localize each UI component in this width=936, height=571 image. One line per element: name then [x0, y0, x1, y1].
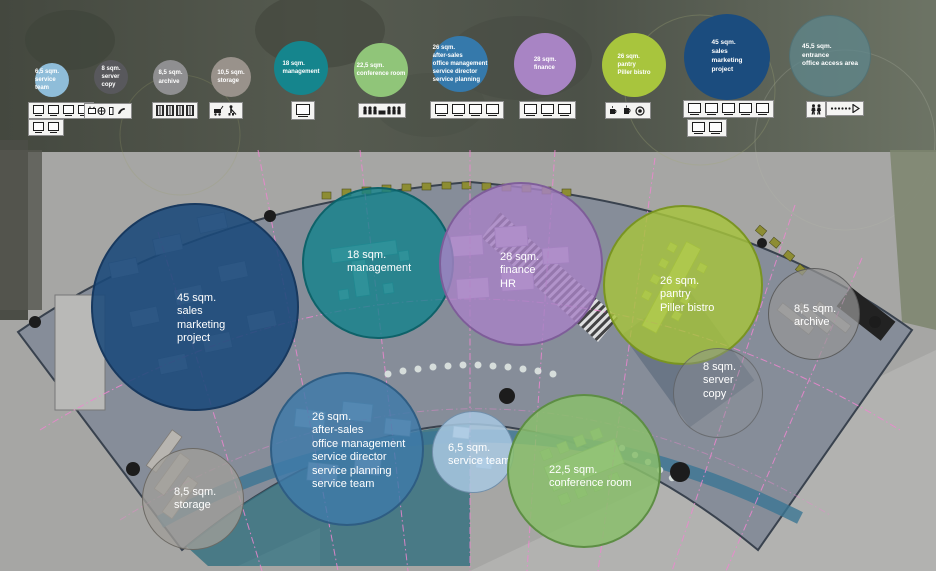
legend-icons-after-sales	[430, 101, 504, 119]
legend-bubble-sales: 45 sqm. sales marketing project	[684, 14, 770, 100]
legend-bubble-entrance: 45,5 sqm. entrance office access area	[789, 15, 871, 97]
legend-bubble-label: 18 sqm. management	[282, 60, 319, 76]
zone-bubble-label: 28 sqm. finance HR	[500, 251, 539, 291]
monitor-icon	[469, 104, 482, 114]
monitor-icon	[452, 104, 465, 114]
zone-bubble-label: 8 sqm. server copy	[703, 361, 736, 401]
zone-bubble-conference-room: 22,5 sqm. conference room	[507, 394, 661, 548]
legend-bubble-management: 18 sqm. management	[274, 41, 328, 95]
zone-bubble-pantry: 26 sqm. pantry Piller bistro	[603, 205, 763, 365]
printer-copier-phone-icons	[88, 106, 128, 116]
monitor-icon	[63, 105, 74, 114]
zone-bubble-finance: 28 sqm. finance HR	[439, 182, 603, 346]
legend-bubble-finance: 28 sqm. finance	[514, 33, 576, 95]
legend-icons-pantry	[605, 102, 651, 119]
legend-bubble-server-copy: 8 sqm. server copy	[94, 60, 128, 94]
legend-bubble-label: 8 sqm. server copy	[101, 65, 120, 89]
monitor-icon	[541, 104, 554, 114]
legend-icons-entrance-arrow	[826, 101, 864, 116]
legend-bubble-label: 6,5 sqm. service team	[35, 68, 69, 92]
legend-icons-archive	[152, 102, 198, 119]
monitor-icon	[705, 103, 718, 113]
monitor-icon	[524, 104, 537, 114]
legend-bubble-label: 22,5 sqm. conference room	[357, 62, 406, 78]
legend-icons-server-copy	[84, 103, 132, 119]
zone-bubble-label: 45 sqm. sales marketing project	[177, 292, 225, 346]
monitor-icon	[739, 103, 752, 113]
shelf-icon	[176, 105, 184, 116]
legend-bubble-label: 28 sqm. finance	[534, 56, 556, 72]
people-icon	[810, 104, 822, 115]
shelf-icon	[166, 105, 174, 116]
monitor-icon	[48, 105, 59, 114]
zone-bubble-label: 8,5 sqm. storage	[174, 486, 216, 513]
legend-bubble-pantry: 26 sqm. pantry Piller bistro	[602, 33, 666, 97]
zone-bubble-label: 22,5 sqm. conference room	[549, 464, 632, 491]
legend-bubble-label: 8,5 sqm. archive	[158, 69, 182, 85]
legend-icons-service-team-row2	[28, 119, 64, 136]
legend-icons-management	[291, 101, 315, 120]
zone-bubble-server-copy: 8 sqm. server copy	[673, 348, 763, 438]
meeting-silhouette-icon	[362, 106, 402, 115]
legend-icons-entrance-people	[806, 101, 826, 118]
zone-bubble-label: 8,5 sqm. archive	[794, 303, 836, 330]
cleaning-icons	[213, 105, 239, 116]
legend-bubble-conference-room: 22,5 sqm. conference room	[354, 43, 408, 97]
zone-bubble-sales: 45 sqm. sales marketing project	[91, 203, 299, 411]
monitor-icon	[558, 104, 571, 114]
legend-bubble-label: 10,5 sqm. storage	[217, 69, 244, 85]
legend-bubble-after-sales: 26 sqm. after-sales office management se…	[432, 36, 488, 92]
legend-icons-finance	[519, 101, 576, 119]
zone-bubble-storage: 8,5 sqm. storage	[142, 448, 244, 550]
coffee-icons	[609, 105, 647, 116]
zone-bubble-after-sales: 26 sqm. after-sales office management se…	[270, 372, 424, 526]
shelf-icon	[186, 105, 194, 116]
monitor-icon	[722, 103, 735, 113]
legend-bubble-service-team: 6,5 sqm. service team	[35, 63, 69, 97]
monitor-icon	[709, 122, 722, 132]
monitor-icon	[435, 104, 448, 114]
zone-bubble-label: 26 sqm. pantry Piller bistro	[660, 275, 714, 315]
monitor-icon	[486, 104, 499, 114]
zone-bubble-label: 26 sqm. after-sales office management se…	[312, 411, 405, 491]
monitor-icon	[756, 103, 769, 113]
legend-bubble-storage: 10,5 sqm. storage	[211, 57, 251, 97]
legend-icons-storage	[209, 102, 243, 119]
legend-icons-sales	[683, 100, 774, 118]
shelf-icon	[156, 105, 164, 116]
legend-bubble-label: 26 sqm. pantry Piller bistro	[617, 53, 650, 77]
legend-bubble-archive: 8,5 sqm. archive	[153, 60, 188, 95]
monitor-icon	[33, 105, 44, 114]
zone-bubble-management: 18 sqm. management	[302, 187, 454, 339]
monitor-icon	[48, 122, 59, 131]
legend-bubble-label: 45,5 sqm. entrance office access area	[802, 43, 858, 69]
walk-arrow-icon	[830, 104, 860, 113]
zone-bubble-service-team: 6,5 sqm. service team	[432, 411, 514, 493]
zone-bubble-label: 6,5 sqm. service team	[448, 442, 510, 469]
legend-bubble-label: 45 sqm. sales marketing project	[711, 39, 742, 74]
monitor-icon	[33, 122, 44, 131]
zone-bubble-archive: 8,5 sqm. archive	[768, 268, 860, 360]
legend-icons-conference-room	[358, 103, 406, 118]
monitor-icon	[692, 122, 705, 132]
zone-bubble-label: 18 sqm. management	[347, 249, 411, 276]
legend-bubble-label: 26 sqm. after-sales office management se…	[433, 44, 488, 84]
monitor-icon	[296, 104, 310, 115]
floor-plan: 45 sqm. sales marketing project 18 sqm. …	[0, 0, 936, 571]
monitor-icon	[688, 103, 701, 113]
legend-icons-sales-row2	[687, 119, 727, 137]
